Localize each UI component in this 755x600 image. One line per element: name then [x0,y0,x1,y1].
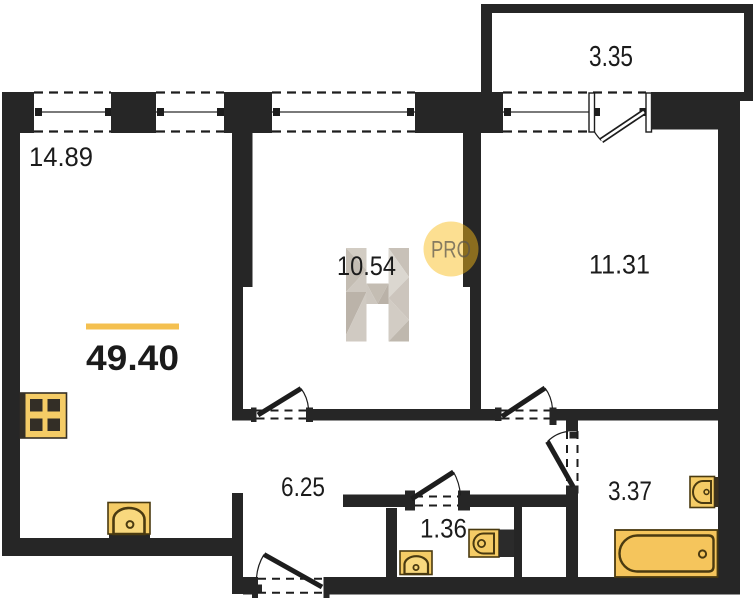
svg-text:10.54: 10.54 [337,251,396,281]
svg-text:11.31: 11.31 [589,250,650,280]
svg-text:3.35: 3.35 [589,41,633,73]
svg-text:6.25: 6.25 [281,472,325,502]
svg-text:14.89: 14.89 [29,142,93,172]
svg-text:49.40: 49.40 [86,339,179,378]
svg-text:1.36: 1.36 [420,514,467,544]
svg-text:3.37: 3.37 [608,476,652,506]
svg-text:PRO: PRO [431,237,471,264]
